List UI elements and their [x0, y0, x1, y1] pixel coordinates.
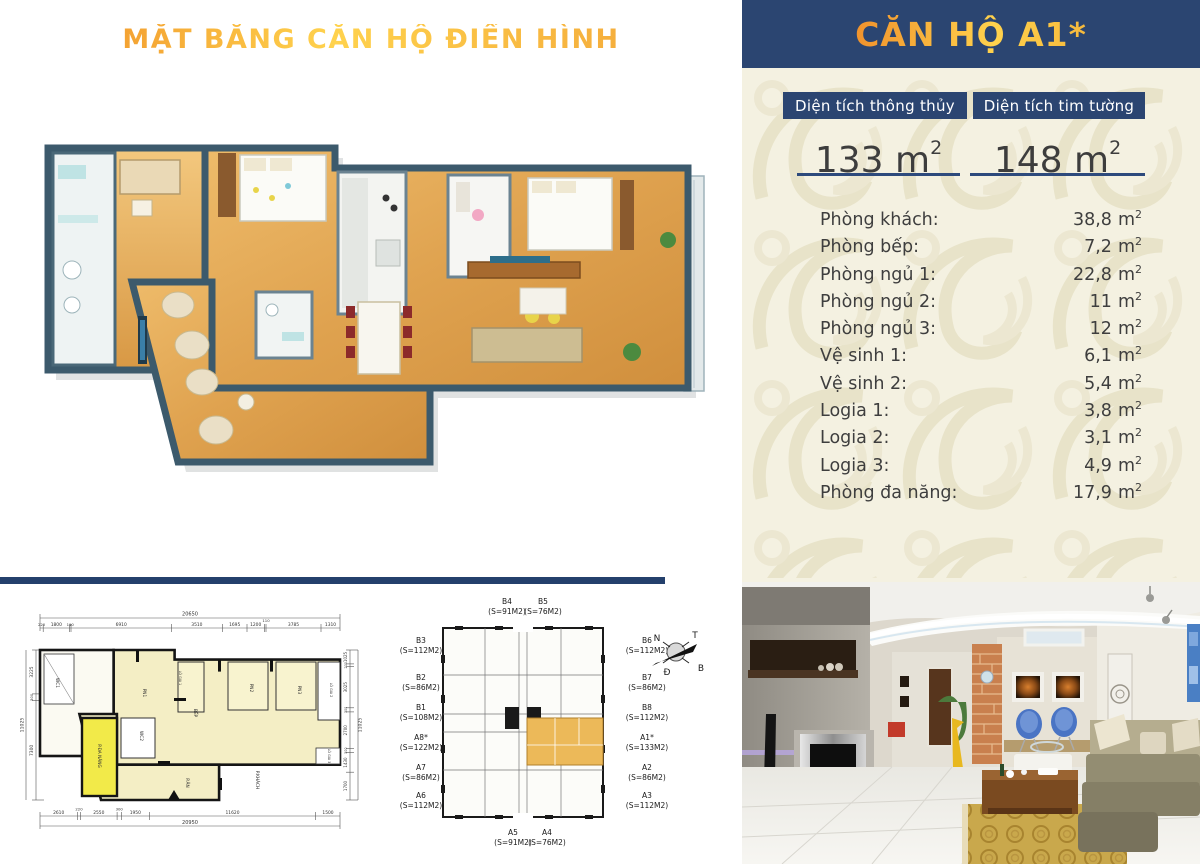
svg-text:(S=86M2): (S=86M2) [628, 683, 666, 692]
svg-text:A4: A4 [542, 828, 552, 837]
svg-text:N: N [654, 634, 661, 644]
room-row: Phòng ngủ 3:12m2 [820, 317, 1142, 344]
svg-text:3025: 3025 [343, 682, 348, 693]
svg-text:LÔ GIA 3: LÔ GIA 3 [327, 749, 332, 764]
svg-text:1950: 1950 [130, 810, 141, 816]
metric-value-thong-thuy: 133 m2 [797, 126, 960, 176]
room-row: Logia 2:3,1m2 [820, 426, 1142, 453]
svg-text:P.ĐA NĂNG: P.ĐA NĂNG [96, 744, 103, 768]
svg-text:110: 110 [67, 622, 75, 627]
svg-text:LÔ GIA 1: LÔ GIA 1 [178, 671, 183, 686]
svg-text:1700: 1700 [343, 780, 348, 791]
room-row: Phòng ngủ 1:22,8m2 [820, 263, 1142, 290]
svg-text:PN1: PN1 [141, 689, 147, 698]
svg-text:PN3: PN3 [296, 686, 302, 695]
svg-text:11620: 11620 [226, 810, 240, 816]
svg-text:2550: 2550 [93, 810, 104, 816]
svg-text:200: 200 [344, 662, 348, 668]
room-row: Phòng ngủ 2:11m2 [820, 290, 1142, 317]
svg-text:B7: B7 [642, 673, 652, 682]
svg-text:1310: 1310 [325, 622, 336, 628]
svg-text:220: 220 [38, 622, 46, 627]
svg-text:(S=86M2): (S=86M2) [402, 773, 440, 782]
svg-text:A7: A7 [416, 763, 426, 772]
svg-text:500: 500 [30, 693, 34, 701]
room-row: Phòng khách:38,8m2 [820, 208, 1142, 235]
svg-text:B5: B5 [538, 597, 548, 606]
svg-text:A1*: A1* [640, 733, 654, 742]
svg-text:1430: 1430 [343, 757, 348, 768]
svg-text:20950: 20950 [182, 820, 198, 826]
room-row: Phòng bếp:7,2m2 [820, 235, 1142, 262]
svg-text:A5: A5 [508, 828, 518, 837]
svg-text:B1: B1 [416, 703, 426, 712]
svg-text:B6: B6 [642, 636, 652, 645]
svg-text:B3: B3 [416, 636, 426, 645]
svg-text:300: 300 [116, 807, 124, 812]
metric-label-tim-tuong: Diện tích tim tường [973, 92, 1145, 119]
svg-text:2700: 2700 [343, 725, 348, 736]
svg-text:(S=86M2): (S=86M2) [628, 773, 666, 782]
floorplan-3d [20, 120, 730, 580]
tv-console [468, 262, 580, 278]
floorplan-2d: 20650 220 1800 110 6910 3510 1695 1200 1… [18, 598, 393, 848]
bathroom-1 [53, 153, 115, 365]
svg-text:1200: 1200 [250, 622, 261, 628]
living-sofa [472, 328, 582, 362]
svg-text:11025: 11025 [358, 718, 364, 733]
bathroom-2 [256, 292, 312, 358]
svg-text:20650: 20650 [182, 612, 198, 618]
svg-text:110: 110 [262, 618, 270, 623]
svg-text:T: T [691, 631, 698, 641]
svg-text:B8: B8 [642, 703, 652, 712]
svg-text:(S=86M2): (S=86M2) [402, 683, 440, 692]
svg-text:B: B [698, 664, 704, 674]
svg-text:1800: 1800 [51, 622, 62, 628]
svg-text:1695: 1695 [229, 622, 240, 628]
svg-text:PN2: PN2 [248, 684, 254, 693]
svg-text:11025: 11025 [20, 718, 26, 733]
svg-text:(S=91M2): (S=91M2) [494, 838, 532, 847]
svg-text:B4: B4 [502, 597, 512, 606]
highlight-unit-a1 [527, 718, 603, 765]
svg-text:(S=108M2): (S=108M2) [400, 713, 443, 722]
svg-text:WC1: WC1 [54, 678, 60, 688]
keyplan: B4(S=91M2) B5(S=76M2) B3(S=112M2) B2(S=8… [395, 595, 725, 864]
svg-text:1500: 1500 [322, 810, 333, 816]
svg-text:300: 300 [344, 707, 348, 713]
svg-text:3225: 3225 [29, 666, 35, 677]
svg-text:6910: 6910 [116, 622, 127, 628]
svg-text:(S=112M2): (S=112M2) [626, 801, 669, 810]
room-row: Vệ sinh 2:5,4m2 [820, 372, 1142, 399]
metric-label-thong-thuy: Diện tích thông thủy [783, 92, 967, 119]
svg-text:3510: 3510 [191, 622, 202, 628]
svg-text:A6: A6 [416, 791, 426, 800]
unit-header: CĂN HỘ A1* [742, 0, 1200, 68]
svg-text:2610: 2610 [53, 810, 64, 816]
keyplan-building [441, 624, 605, 821]
metric-value-tim-tuong: 148 m2 [970, 126, 1145, 176]
svg-text:WC2: WC2 [138, 731, 144, 741]
svg-text:3785: 3785 [288, 622, 299, 628]
svg-text:P.KHÁCH: P.KHÁCH [254, 771, 261, 789]
svg-text:(S=76M2): (S=76M2) [524, 607, 562, 616]
svg-text:(S=112M2): (S=112M2) [400, 801, 443, 810]
svg-text:(S=76M2): (S=76M2) [528, 838, 566, 847]
unit-title: CĂN HỘ A1* [855, 15, 1087, 54]
plan2d-body [40, 650, 340, 800]
svg-text:(S=91M2): (S=91M2) [488, 607, 526, 616]
page-title: MẶT BẰNG CĂN HỘ ĐIỂN HÌNH [0, 24, 742, 55]
svg-text:7300: 7300 [29, 745, 35, 756]
svg-text:Đ: Đ [664, 668, 671, 678]
svg-text:(S=122M2): (S=122M2) [400, 743, 443, 752]
svg-text:1025: 1025 [343, 651, 348, 662]
left-section: MẶT BẰNG CĂN HỘ ĐIỂN HÌNH [0, 0, 742, 864]
section-divider [0, 577, 665, 584]
svg-text:LÔ GIA 2: LÔ GIA 2 [329, 683, 334, 698]
svg-text:A3: A3 [642, 791, 652, 800]
svg-text:(S=133M2): (S=133M2) [626, 743, 669, 752]
room-row: Logia 1:3,8m2 [820, 399, 1142, 426]
room-row: Vệ sinh 1:6,1m2 [820, 344, 1142, 371]
svg-text:B2: B2 [416, 673, 426, 682]
room-row: Logia 3:4,9m2 [820, 454, 1142, 481]
svg-text:220: 220 [75, 807, 83, 812]
svg-text:(S=112M2): (S=112M2) [400, 646, 443, 655]
brochure-page: { "title": "MẶT BẰNG CĂN HỘ ĐIỂN HÌNH", … [0, 0, 1200, 864]
svg-text:A2: A2 [642, 763, 652, 772]
room-row: Phòng đa năng:17,9m2 [820, 481, 1142, 508]
svg-text:(S=112M2): (S=112M2) [626, 713, 669, 722]
room-area-list: Phòng khách:38,8m2 Phòng bếp:7,2m2 Phòng… [820, 208, 1142, 508]
svg-text:300: 300 [344, 747, 348, 753]
svg-text:P.ĂN: P.ĂN [184, 778, 191, 787]
svg-text:A8*: A8* [414, 733, 428, 742]
dining-table [358, 302, 400, 374]
interior-photo [742, 582, 1200, 864]
svg-text:(S=112M2): (S=112M2) [626, 646, 669, 655]
